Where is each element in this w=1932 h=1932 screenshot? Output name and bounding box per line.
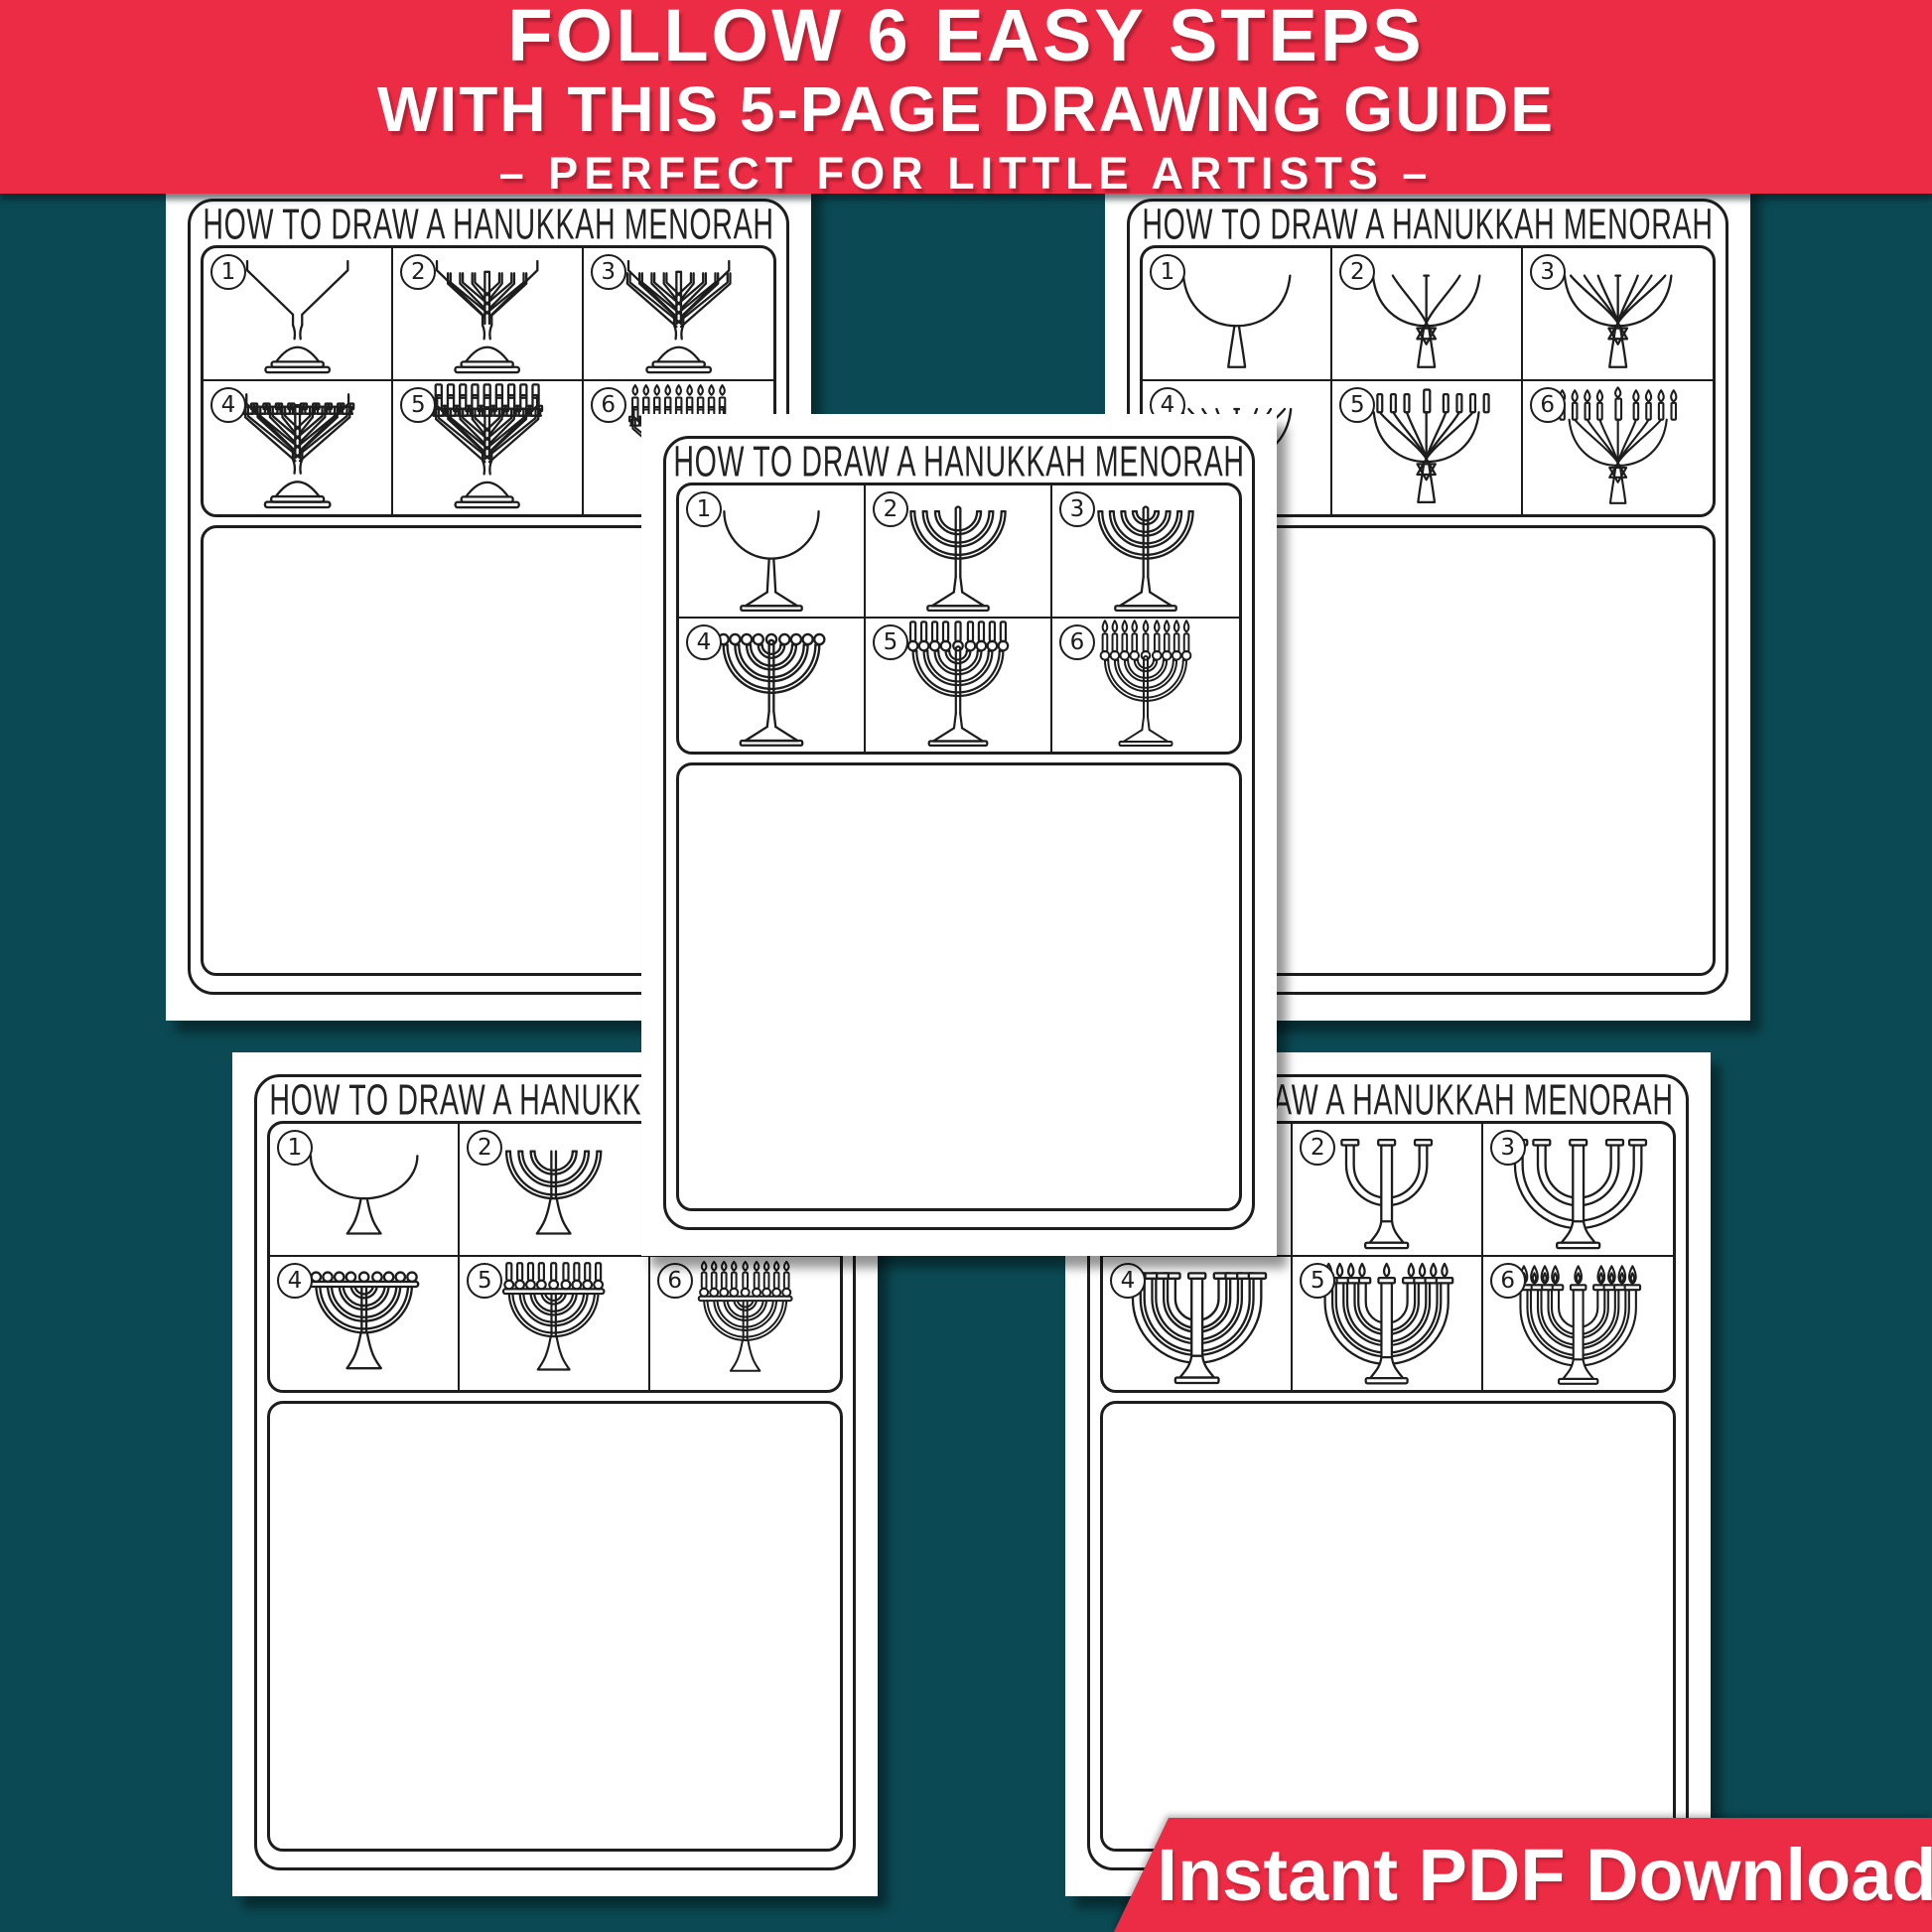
step-cell: 3	[584, 248, 773, 381]
step-number-badge: 4	[1110, 1263, 1146, 1299]
step-number-badge: 3	[591, 254, 626, 290]
step-number-badge: 4	[210, 387, 246, 423]
step-cell: 2	[460, 1124, 649, 1257]
step-cell: 4	[1103, 1257, 1293, 1390]
banner-line-1: FOLLOW 6 EASY STEPS	[507, 0, 1424, 75]
worksheet-border: HOW TO DRAW A HANUKKAH MENORAH 123456	[663, 436, 1255, 1230]
practice-area	[676, 762, 1242, 1211]
product-listing-image: { "banner": { "line1": "FOLLOW 6 EASY ST…	[0, 0, 1932, 1932]
step-number-badge: 6	[1530, 387, 1566, 423]
step-cell: 4	[270, 1257, 460, 1390]
step-cell: 2	[1332, 248, 1522, 381]
step-cell: 5	[1293, 1257, 1482, 1390]
step-cell: 5	[460, 1257, 649, 1390]
step-cell: 4	[679, 619, 866, 752]
worksheet-title: HOW TO DRAW A HANUKKAH MENORAH	[1225, 201, 1630, 248]
step-number-badge: 4	[686, 624, 722, 660]
step-cell: 1	[204, 248, 393, 381]
step-cell: 5	[1332, 381, 1522, 514]
step-cell: 3	[1483, 1124, 1673, 1257]
step-number-badge: 1	[210, 254, 246, 290]
step-cell: 6	[1483, 1257, 1673, 1390]
step-number-badge: 1	[686, 491, 722, 527]
step-cell: 3	[1052, 485, 1239, 619]
step-cell: 2	[393, 248, 583, 381]
headline-banner: FOLLOW 6 EASY STEPS WITH THIS 5-PAGE DRA…	[0, 0, 1932, 194]
step-cell: 2	[866, 485, 1052, 619]
practice-area	[1100, 1401, 1676, 1852]
step-number-badge: 3	[1530, 254, 1566, 290]
step-number-badge: 3	[1059, 491, 1095, 527]
worksheet-page-center: HOW TO DRAW A HANUKKAH MENORAH 123456	[641, 414, 1277, 1256]
step-number-badge: 6	[1059, 624, 1095, 660]
step-cell: 5	[866, 619, 1052, 752]
practice-area	[267, 1401, 843, 1852]
step-cell: 6	[650, 1257, 840, 1390]
step-cell: 1	[679, 485, 866, 619]
download-ribbon: Instant PDF Download	[1092, 1818, 1932, 1932]
step-number-badge: 4	[277, 1263, 313, 1299]
step-cell: 5	[393, 381, 583, 514]
step-number-badge: 3	[1490, 1130, 1526, 1166]
worksheet-title: HOW TO DRAW A HANUKKAH MENORAH	[286, 201, 691, 248]
step-cell: 1	[270, 1124, 460, 1257]
step-number-badge: 1	[277, 1130, 313, 1166]
step-cell: 4	[204, 381, 393, 514]
worksheet-title: HOW TO DRAW A HANUKKAH MENORAH	[759, 438, 1158, 485]
step-cell: 2	[1293, 1124, 1482, 1257]
step-cell: 1	[1143, 248, 1332, 381]
step-number-badge: 1	[1150, 254, 1185, 290]
step-number-badge: 5	[873, 624, 908, 660]
step-cell: 6	[1523, 381, 1713, 514]
steps-grid: 123456	[676, 483, 1242, 755]
step-number-badge: 6	[1490, 1263, 1526, 1299]
step-number-badge: 2	[873, 491, 908, 527]
step-cell: 6	[1052, 619, 1239, 752]
step-cell: 3	[1523, 248, 1713, 381]
banner-line-3: – PERFECT FOR LITTLE ARTISTS –	[499, 150, 1434, 199]
step-number-badge: 6	[657, 1263, 693, 1299]
ribbon-label: Instant PDF Download	[1092, 1818, 1932, 1932]
step-number-badge: 6	[591, 387, 626, 423]
banner-line-2: WITH THIS 5-PAGE DRAWING GUIDE	[377, 75, 1555, 144]
